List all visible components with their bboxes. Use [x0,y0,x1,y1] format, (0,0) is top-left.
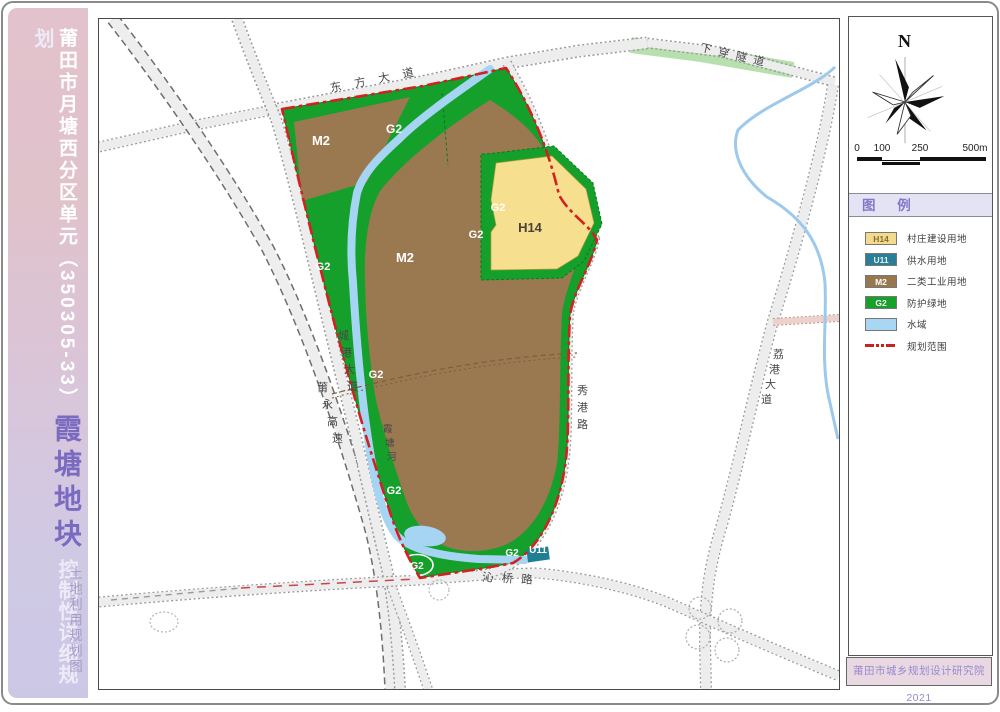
legend-label: 二类工业用地 [907,274,967,288]
compass-rose-icon [859,49,951,155]
title-sidebar: 莆田市月塘西分区单元（350305-33） 霞塘地块 控制性详细规划 土地利用规… [8,8,88,698]
area-label-M2: M2 [312,133,330,148]
area-label-G2: G2 [469,229,484,241]
scale-bar: 0100250500m [849,143,992,175]
attribution: 莆田市城乡规划设计研究院 2021 [846,657,992,686]
legend-item: 规划范围 [849,335,992,356]
legend-swatch: U11 [865,253,897,266]
legend-swatch: G2 [865,296,897,309]
legend-item: U11供水用地 [849,249,992,270]
plan-title-unit: 莆田市月塘西分区单元（350305-33） [56,28,77,410]
legend-label: 村庄建设用地 [907,231,967,245]
scale-tick: 0 [854,143,860,154]
map-sheet-name: 土地利用规划图 [64,566,84,675]
area-label-G2: G2 [369,369,384,381]
plan-title-block: 霞塘地块 [51,414,92,554]
map-legend-panel: N 0100250500m 图 例 H14村庄建设用地U11供水用地M2二类工业… [848,16,993,656]
legend-items: H14村庄建设用地U11供水用地M2二类工业用地G2防护绿地水域规划范围 [849,227,992,356]
plan-sheet: 莆田市月塘西分区单元（350305-33） 霞塘地块 控制性详细规划 土地利用规… [0,0,1000,706]
scale-tick: 100 [874,143,891,154]
area-label-U11: U11 [529,545,547,556]
area-label-G2: G2 [491,202,506,214]
legend-swatch: H14 [865,232,897,245]
legend-item: 水域 [849,314,992,335]
road-label: 秀港路 [577,384,588,431]
legend-item: M2二类工业用地 [849,271,992,292]
area-label-G2: G2 [386,122,402,136]
legend-label: 规划范围 [907,339,947,353]
area-label-H14: H14 [518,220,543,235]
map-canvas: 东方大道下穿隧道沁桥路莆永高速城港大道霞塘河秀港路荔港大道 M2G2M2G2G2… [98,18,840,690]
area-label-M2: M2 [396,250,414,265]
legend-label: 水域 [907,317,927,331]
legend-label: 防护绿地 [907,296,947,310]
legend-title: 图 例 [849,193,992,217]
legend-label: 供水用地 [907,253,947,267]
area-label-G2: G2 [410,561,424,572]
area-label-G2: G2 [505,548,519,559]
legend-item: H14村庄建设用地 [849,228,992,249]
legend-swatch [865,318,897,331]
legend-item: G2防护绿地 [849,292,992,313]
area-label-G2: G2 [387,485,402,497]
area-label-G2: G2 [316,261,331,273]
legend-swatch: M2 [865,275,897,288]
scale-tick: 250 [912,143,929,154]
scale-tick: 500m [962,143,987,154]
boundary-line-symbol [865,339,897,352]
